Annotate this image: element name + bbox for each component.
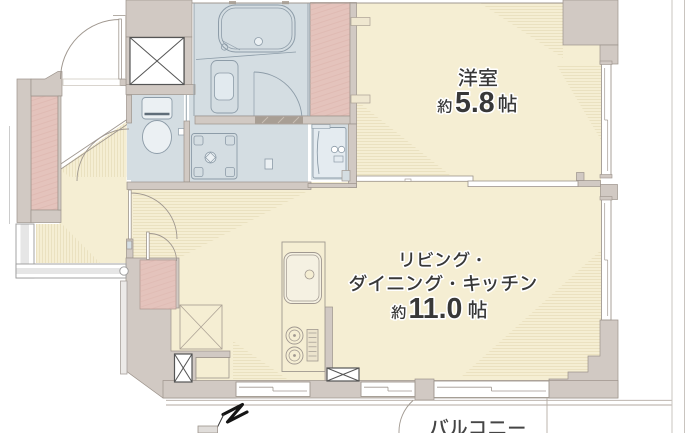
svg-text:11.0: 11.0 [409, 293, 463, 325]
svg-text:5.8: 5.8 [455, 87, 495, 119]
